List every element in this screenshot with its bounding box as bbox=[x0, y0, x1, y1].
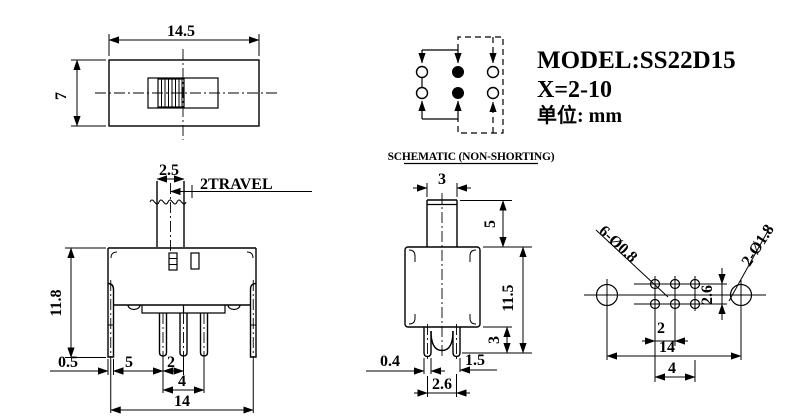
x-range: X=2-10 bbox=[537, 77, 612, 103]
dim-lug-span: 14 bbox=[174, 393, 190, 410]
window-plain bbox=[191, 253, 199, 269]
top-view: 14.5 7 bbox=[53, 23, 277, 140]
title-block: MODEL:SS22D15 X=2-10 单位: mm bbox=[537, 47, 736, 127]
label-small-holes: 6-Ø0.8 bbox=[595, 222, 640, 266]
dim-knob-height: 5 bbox=[482, 220, 499, 228]
schematic-view: SCHEMATIC (NON-SHORTING) bbox=[388, 37, 555, 164]
dim-leg-offset: 1.5 bbox=[465, 352, 485, 369]
label-large-holes: 2-Ø1.8 bbox=[739, 222, 778, 270]
footprint-view: 6-Ø0.8 2-Ø1.8 2.6 2 14 4 bbox=[584, 222, 778, 382]
terminal-open bbox=[488, 88, 499, 99]
side-body-outline bbox=[405, 247, 480, 327]
dim-row-pitch: 2.6 bbox=[699, 285, 716, 305]
dim-hole-pitch: 2 bbox=[657, 320, 665, 337]
dim-side-body-height: 11.5 bbox=[500, 284, 517, 311]
dim-side-knob-width: 3 bbox=[438, 171, 446, 188]
engineering-drawing-page: 14.5 7 SCHEMATIC (NON-SHORTING) MODEL:SS… bbox=[0, 0, 800, 420]
dashed-position-path bbox=[458, 37, 503, 133]
dim-pin-pitch: 2 bbox=[167, 354, 175, 371]
travel-label: 2TRAVEL bbox=[200, 176, 273, 193]
dim-body-height: 11.8 bbox=[48, 289, 65, 316]
dim-leg-thickness: 0.4 bbox=[380, 353, 400, 370]
window-detent bbox=[169, 253, 177, 270]
slide-switch-drawing: 14.5 7 SCHEMATIC (NON-SHORTING) MODEL:SS… bbox=[0, 0, 800, 420]
frame-hook bbox=[409, 250, 415, 262]
corner-mark bbox=[247, 252, 253, 258]
dim-top-height: 7 bbox=[53, 92, 70, 100]
corner-mark bbox=[111, 252, 117, 258]
break-line bbox=[150, 200, 186, 204]
schematic-caption: SCHEMATIC (NON-SHORTING) bbox=[388, 151, 555, 163]
dim-leg-length: 3 bbox=[486, 336, 503, 344]
dim-lug-thickness: 0.5 bbox=[58, 354, 78, 371]
terminal-open bbox=[488, 67, 499, 78]
terminal-common bbox=[453, 67, 464, 78]
dim-leg-span: 2.6 bbox=[432, 376, 452, 393]
dim-knob-width: 2.5 bbox=[159, 162, 179, 179]
dim-lug-to-pin: 5 bbox=[125, 354, 133, 371]
frame-hook bbox=[470, 250, 476, 262]
frame-hook bbox=[470, 314, 476, 324]
terminal-open bbox=[417, 88, 428, 99]
side-view: 3 5 11.5 3 0.4 1.5 2.6 bbox=[366, 171, 532, 397]
dim-top-width: 14.5 bbox=[167, 23, 195, 40]
frame-hook bbox=[409, 314, 415, 324]
terminal-common bbox=[453, 88, 464, 99]
terminal-open bbox=[417, 67, 428, 78]
dim-mount-span: 14 bbox=[659, 339, 675, 356]
dim-pin-span: 4 bbox=[178, 373, 186, 390]
dim-hole-span: 4 bbox=[668, 360, 676, 377]
model-number: MODEL:SS22D15 bbox=[537, 47, 736, 74]
units-label: 单位: mm bbox=[537, 103, 622, 127]
front-view: 2.5 2TRAVEL bbox=[48, 162, 312, 413]
